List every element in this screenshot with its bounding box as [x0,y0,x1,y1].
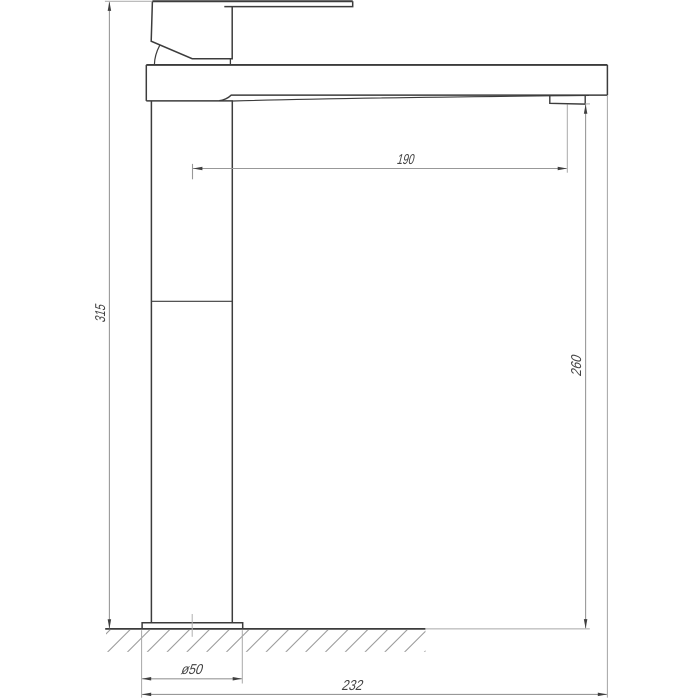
svg-text:ø50: ø50 [179,662,205,678]
svg-text:190: 190 [395,151,416,167]
svg-text:315: 315 [91,302,108,324]
svg-text:260: 260 [568,352,584,378]
svg-text:232: 232 [340,677,365,693]
